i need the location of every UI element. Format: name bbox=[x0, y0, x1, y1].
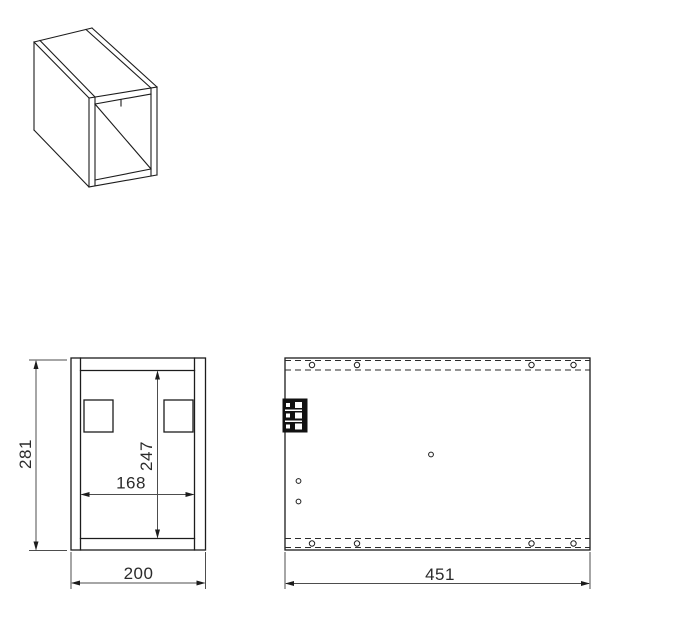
screw-hole bbox=[571, 362, 576, 367]
hinge-plate-slot bbox=[285, 410, 302, 412]
dimension-overall-width-front: 200 bbox=[71, 552, 206, 589]
dimension-label-281: 281 bbox=[16, 439, 35, 469]
side-view bbox=[283, 358, 590, 550]
dimension-inner-width: 168 bbox=[81, 474, 195, 498]
arrowhead-right bbox=[581, 581, 590, 586]
front-right-bracket bbox=[164, 400, 193, 432]
iso-front-bottom-edge bbox=[89, 175, 157, 187]
isometric-view bbox=[34, 28, 157, 187]
screw-hole bbox=[309, 362, 314, 367]
side-outer-outline bbox=[285, 358, 590, 550]
iso-front-top-edge bbox=[89, 87, 157, 98]
screw-hole bbox=[529, 362, 534, 367]
arrowhead-right bbox=[186, 492, 195, 497]
iso-top-right-edge bbox=[92, 28, 157, 87]
iso-right-panel-inner-top-edge bbox=[86, 30, 151, 89]
dimension-label-200: 200 bbox=[124, 564, 154, 583]
hinge-plate-slot bbox=[295, 402, 302, 408]
arrowhead-up bbox=[34, 360, 39, 369]
technical-drawing-page: 281 247 168 200 bbox=[0, 0, 678, 623]
dimension-label-451: 451 bbox=[425, 565, 455, 584]
iso-opening-diagonal-edge bbox=[95, 104, 151, 169]
iso-top-back-edge bbox=[34, 28, 92, 42]
hinge-plate-slot bbox=[285, 421, 302, 423]
iso-top-left-edge bbox=[34, 42, 89, 98]
screw-hole bbox=[354, 362, 359, 367]
screw-hole bbox=[309, 541, 314, 546]
arrowhead-left bbox=[71, 581, 80, 586]
cabinet-drawing: 281 247 168 200 bbox=[0, 0, 678, 623]
screw-hole bbox=[529, 541, 534, 546]
dimension-overall-width-side: 451 bbox=[285, 552, 590, 589]
hinge-plate-slot bbox=[295, 413, 302, 419]
panel-hole bbox=[296, 499, 301, 504]
dimension-label-247: 247 bbox=[137, 441, 156, 471]
hinge-plate-slot bbox=[286, 425, 290, 429]
screw-hole bbox=[571, 541, 576, 546]
arrowhead-up bbox=[155, 371, 160, 380]
arrowhead-right bbox=[197, 581, 206, 586]
front-left-bracket bbox=[84, 400, 113, 432]
hinge-plate-slot bbox=[286, 414, 290, 418]
arrowhead-down bbox=[34, 542, 39, 551]
dimension-label-168: 168 bbox=[116, 474, 146, 493]
dimension-overall-height: 281 bbox=[16, 360, 67, 551]
arrowhead-left bbox=[285, 581, 294, 586]
panel-hole bbox=[429, 452, 434, 457]
iso-left-bottom-edge bbox=[34, 130, 89, 187]
iso-bottom-rail-top-edge bbox=[95, 169, 151, 180]
iso-left-panel-inner-top-edge bbox=[40, 41, 95, 98]
hinge-plate-slot bbox=[295, 424, 302, 430]
dimension-inner-height: 247 bbox=[137, 371, 160, 539]
hinge-mount-plate bbox=[283, 399, 307, 432]
hinge-plate-slot bbox=[286, 403, 290, 407]
arrowhead-left bbox=[81, 492, 90, 497]
screw-hole bbox=[354, 541, 359, 546]
arrowhead-down bbox=[155, 530, 160, 539]
panel-hole bbox=[296, 479, 301, 484]
